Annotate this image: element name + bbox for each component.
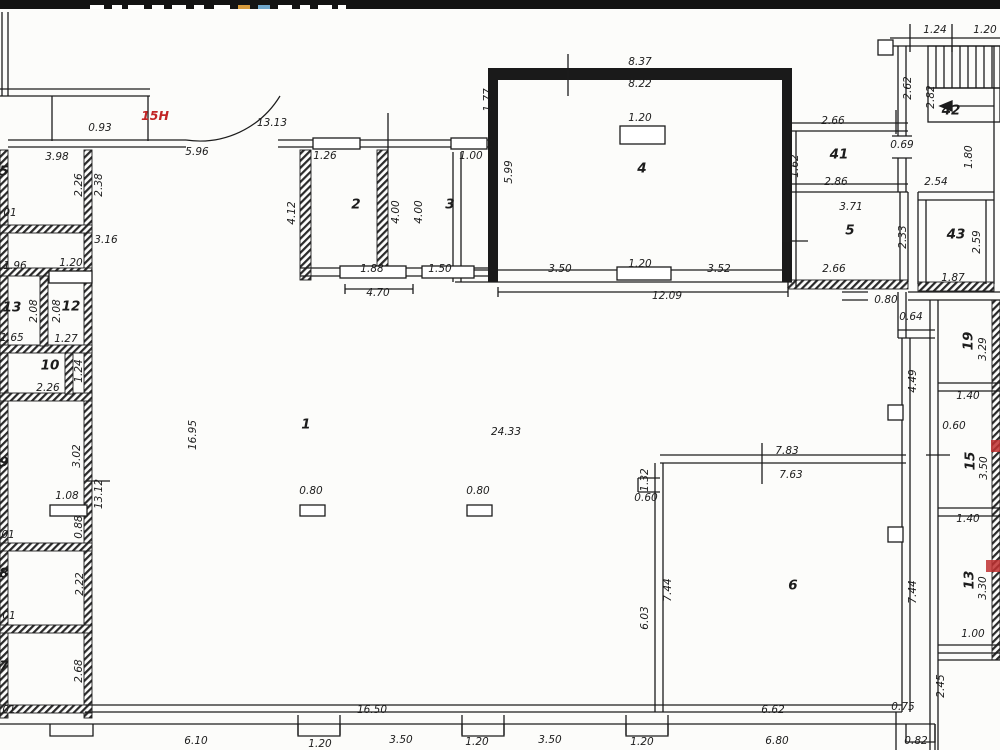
titlebar-text-fragment — [300, 5, 310, 9]
window-symbol — [340, 266, 406, 278]
door-swing-arc — [186, 96, 280, 141]
stair-direction-arrow — [940, 101, 952, 111]
titlebar-text-fragment — [172, 5, 186, 9]
titlebar-text-fragment — [278, 5, 292, 9]
floor-plan-page: 15H0.9313.135.963.9852.262.38013.161.961… — [0, 0, 1000, 750]
walls-hatched — [0, 150, 1000, 718]
titlebar-text-fragment — [152, 5, 164, 9]
window-symbol — [617, 267, 671, 280]
titlebar-text-fragment — [338, 5, 346, 9]
floor-plan-drawing — [0, 0, 1000, 750]
walls-thick — [488, 68, 792, 282]
window-symbol — [313, 138, 360, 149]
title-bar — [0, 0, 1000, 9]
window-symbol — [451, 138, 487, 149]
titlebar-text-fragment — [194, 5, 204, 9]
shaft-symbol — [620, 126, 665, 144]
column-symbol — [888, 527, 903, 542]
staircase — [928, 46, 1000, 122]
titlebar-text-fragment — [258, 5, 270, 9]
titlebar-text-fragment — [238, 5, 250, 9]
window-symbol — [50, 505, 87, 516]
titlebar-text-fragment — [112, 5, 122, 9]
column-symbol — [878, 40, 893, 55]
column-symbol — [888, 405, 903, 420]
window-symbols — [49, 40, 903, 542]
window-symbol — [422, 266, 474, 278]
column-symbol — [467, 505, 492, 516]
titlebar-text-fragment — [318, 5, 332, 9]
titlebar-text-fragment — [128, 5, 144, 9]
walls-thin — [0, 12, 1000, 750]
titlebar-text-fragment — [214, 5, 230, 9]
column-symbol — [300, 505, 325, 516]
titlebar-text-fragment — [90, 5, 104, 9]
outer-wall-notches — [50, 724, 935, 742]
window-symbol — [49, 271, 92, 283]
